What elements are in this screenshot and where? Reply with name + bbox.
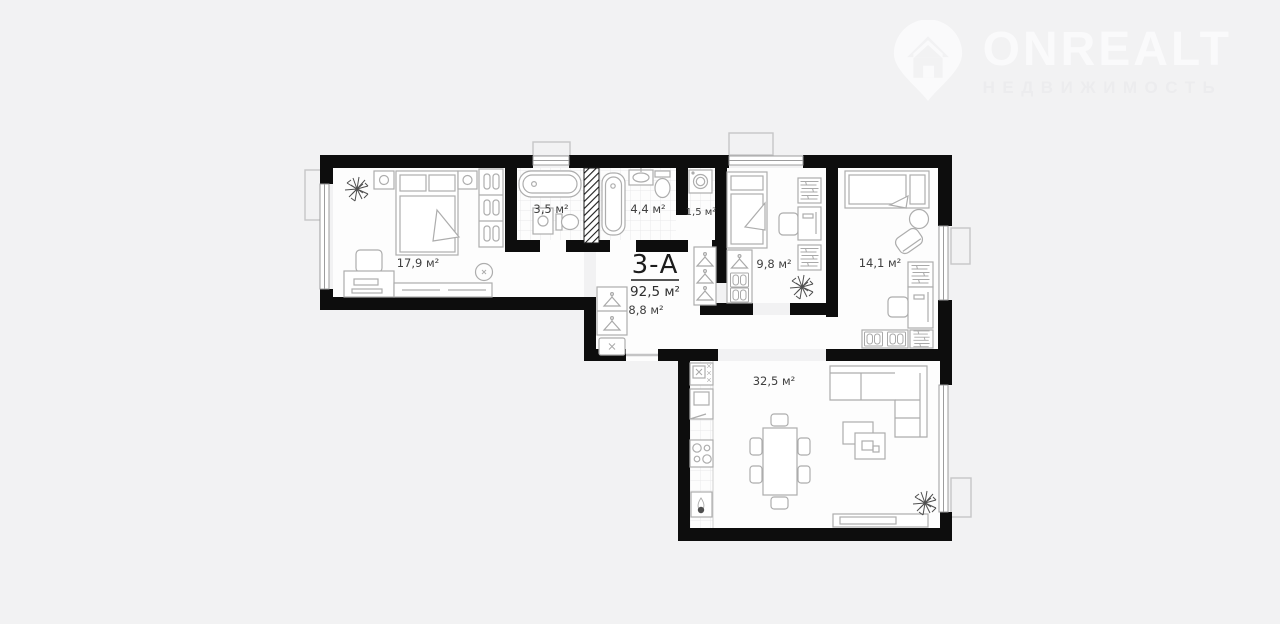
toilet — [556, 214, 579, 230]
wardrobe — [727, 250, 752, 303]
balcony-top — [729, 133, 773, 155]
dresser — [394, 283, 492, 297]
area-label-bedroom-master: 17,9 м² — [397, 256, 440, 270]
window-living-right — [939, 385, 948, 512]
dining-chair — [750, 438, 762, 455]
area-label-bedroom-kids: 9,8 м² — [756, 257, 791, 271]
single-bed — [727, 172, 767, 248]
balcony-right-upper — [951, 228, 970, 264]
dining-chair — [798, 466, 810, 483]
shower-tub — [602, 173, 625, 235]
floor-plan: 17,9 м² 3,5 м² 4,4 м² 1,5 м² 9,8 м² 14,1… — [0, 0, 1280, 624]
ventilation-shaft — [584, 168, 599, 243]
washing-machine — [689, 170, 712, 193]
water-heater — [691, 492, 712, 517]
cooktop — [690, 440, 713, 467]
dining-chair — [771, 497, 788, 509]
bookshelf — [798, 178, 821, 203]
kitchen-sink — [690, 363, 713, 385]
area-label-bathroom-small: 3,5 м² — [533, 202, 568, 216]
room-laundry — [689, 170, 712, 193]
double-bed — [396, 171, 459, 255]
window-kids-top — [729, 156, 803, 165]
unit-total-area: 92,5 м² — [630, 284, 680, 300]
balcony-right-lower — [951, 478, 971, 517]
balcony-left — [305, 170, 321, 220]
unit-number: 3-А — [632, 250, 679, 280]
bathtub — [519, 171, 581, 197]
area-label-hallway: 8,8 м² — [628, 303, 663, 317]
nightstand — [458, 171, 477, 189]
window-bath-top — [533, 156, 569, 165]
shoe-cabinet — [599, 338, 625, 355]
fridge — [690, 389, 713, 419]
area-label-living-kitchen: 32,5 м² — [753, 374, 796, 388]
area-label-laundry: 1,5 м² — [686, 207, 717, 218]
sink — [629, 168, 653, 185]
area-label-bedroom-second: 14,1 м² — [859, 256, 902, 270]
nightstand — [374, 171, 394, 189]
toilet — [655, 171, 670, 198]
side-table — [910, 210, 929, 229]
unit-title: 3-А 92,5 м² — [630, 250, 680, 300]
window-master-left — [320, 184, 329, 289]
window-sill-top — [533, 142, 570, 156]
dining-chair — [798, 438, 810, 455]
area-label-bathroom-large: 4,4 м² — [630, 202, 665, 216]
wardrobe — [694, 247, 716, 305]
dining-chair — [771, 414, 788, 426]
wardrobe — [597, 287, 627, 335]
tv-console — [833, 514, 928, 527]
single-bed — [845, 171, 929, 208]
wardrobe — [479, 169, 503, 247]
bookshelf — [798, 245, 821, 270]
window-second-right — [939, 226, 948, 300]
bookshelf — [910, 330, 933, 348]
dresser — [862, 330, 908, 348]
bookshelf — [908, 262, 933, 287]
dining-chair — [750, 466, 762, 483]
